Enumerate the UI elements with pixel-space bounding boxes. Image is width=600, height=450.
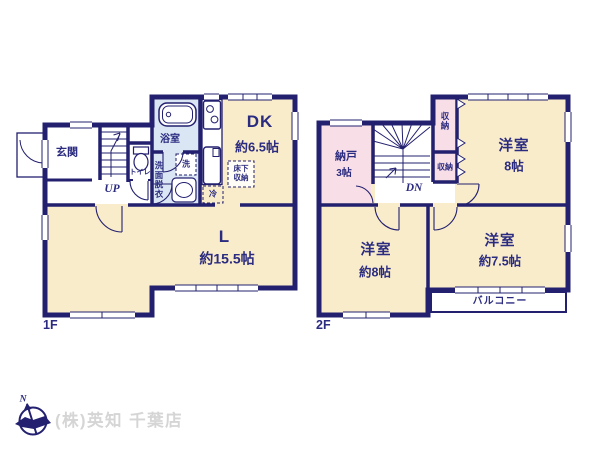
window (42, 215, 48, 240)
window (455, 287, 545, 293)
window (70, 312, 135, 318)
room-label-entrance: 玄関 (56, 147, 78, 160)
room-label-bedroom-se: 洋室 (485, 233, 516, 250)
room-label-bedroom-ne: 洋室 (499, 138, 530, 155)
room-label-living: L (219, 227, 229, 247)
window (330, 120, 362, 126)
window (292, 112, 298, 140)
window (468, 94, 548, 100)
room-size-storage: 3帖 (336, 168, 352, 180)
room-size-bedroom-se: 約7.5帖 (479, 255, 521, 270)
window (70, 122, 92, 128)
closet-upper-label: 収納 (440, 112, 450, 131)
window (175, 285, 258, 291)
window (204, 94, 219, 100)
room-label-washroom: 洗面脱衣 (154, 161, 164, 199)
stairs-up-label: UP (104, 183, 119, 197)
window (343, 312, 390, 318)
compass-icon (15, 403, 51, 435)
storage-room-area (321, 125, 371, 203)
room-size-dk: 約6.5帖 (235, 139, 279, 154)
window (565, 225, 571, 252)
stairs-down-label: DN (406, 182, 423, 196)
toilet-icon (134, 147, 149, 171)
entrance-porch (17, 133, 45, 177)
floorplan-drawing (0, 0, 600, 450)
room-size-bedroom-sw: 約8帖 (359, 266, 391, 281)
underfloor-storage-label: 床下収納 (233, 165, 250, 183)
room-label-dk: DK (247, 112, 274, 132)
entrance-door-opening (42, 140, 48, 168)
floor2-label: 2F (316, 318, 331, 333)
floorplan-canvas: 玄関 浴室 トイレ 洗面脱衣 洗 DK 約6.5帖 床下収納 冷 L 約15.5… (0, 0, 600, 450)
compass-north-label: N (20, 394, 27, 405)
bathtub-icon (159, 103, 196, 126)
kitchen-sink-icon (204, 147, 221, 184)
room-label-bathroom: 浴室 (160, 134, 180, 146)
balcony-label: バルコニー (473, 296, 528, 308)
room-size-living: 約15.5帖 (199, 251, 254, 268)
room-label-toilet: トイレ (130, 169, 151, 177)
room-size-bedroom-ne: 8帖 (504, 160, 523, 175)
stove-icon (204, 101, 221, 129)
room-label-bedroom-sw: 洋室 (361, 242, 392, 259)
closet-lower-label: 収納 (437, 162, 453, 171)
washbasin-icon (172, 178, 196, 202)
room-label-storage: 納戸 (335, 151, 357, 164)
watermark-company: (株)英知 千葉店 (55, 412, 183, 431)
window (228, 94, 272, 100)
fridge-label: 冷 (209, 189, 217, 198)
washer-label: 洗 (182, 159, 190, 168)
floor1-label: 1F (43, 318, 58, 333)
window (565, 112, 571, 142)
